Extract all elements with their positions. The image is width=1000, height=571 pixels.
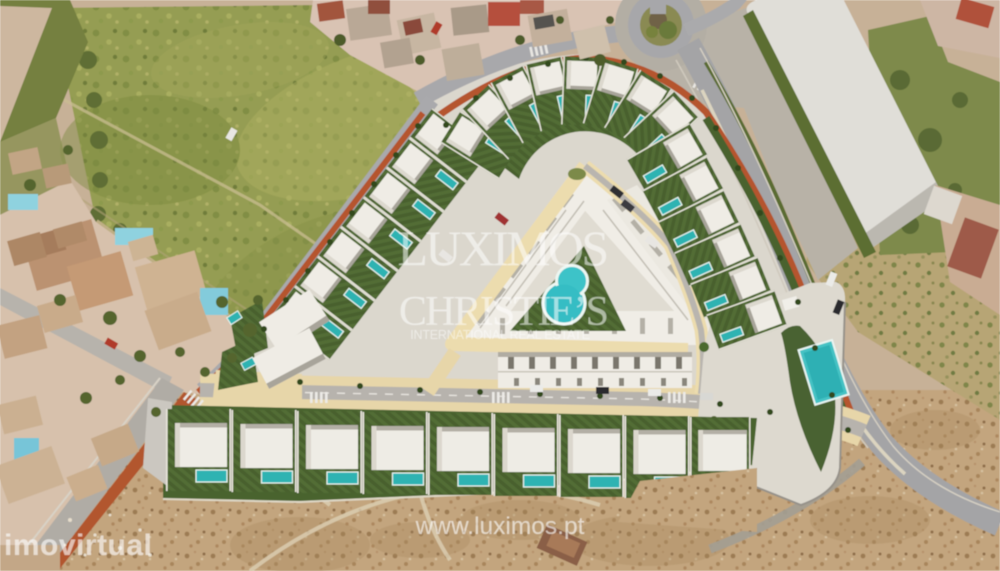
svg-text:INTERNATIONAL REAL ESTATE: INTERNATIONAL REAL ESTATE (410, 328, 590, 342)
svg-text:imovirtual: imovirtual (4, 529, 152, 562)
svg-text:www.luximos.pt: www.luximos.pt (415, 513, 585, 540)
svg-text:LUXIMOS: LUXIMOS (398, 220, 607, 276)
